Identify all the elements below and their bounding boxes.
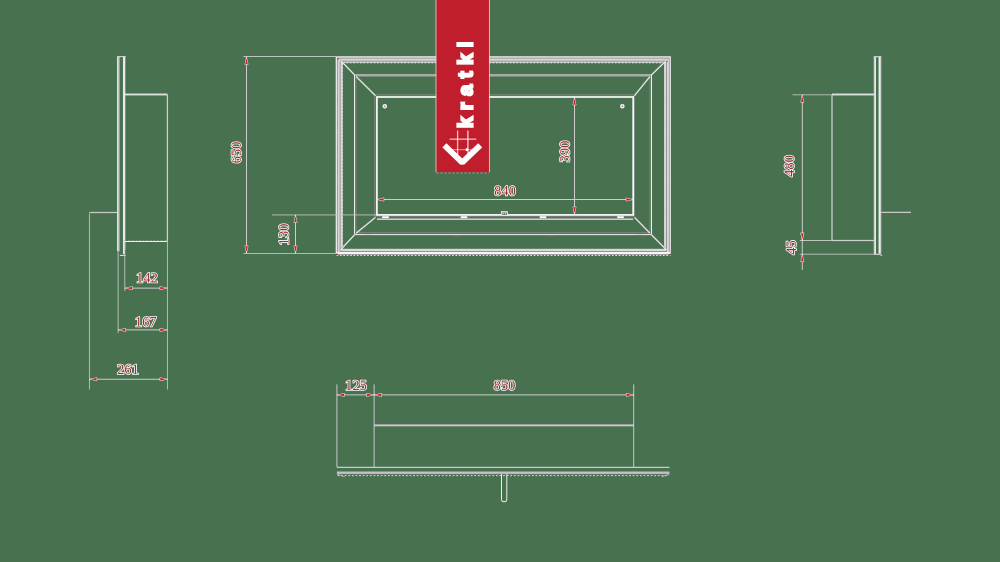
svg-text:850: 850 [494, 378, 516, 394]
svg-text:45: 45 [784, 240, 800, 255]
svg-text:125: 125 [345, 378, 367, 394]
svg-text:650: 650 [229, 142, 245, 164]
svg-text:167: 167 [135, 315, 157, 331]
svg-text:390: 390 [557, 141, 573, 163]
svg-text:840: 840 [494, 184, 516, 200]
svg-text:480: 480 [782, 155, 798, 177]
svg-text:142: 142 [136, 271, 158, 287]
svg-text:kratki: kratki [456, 35, 478, 128]
svg-text:261: 261 [117, 362, 139, 378]
svg-text:130: 130 [277, 224, 293, 246]
